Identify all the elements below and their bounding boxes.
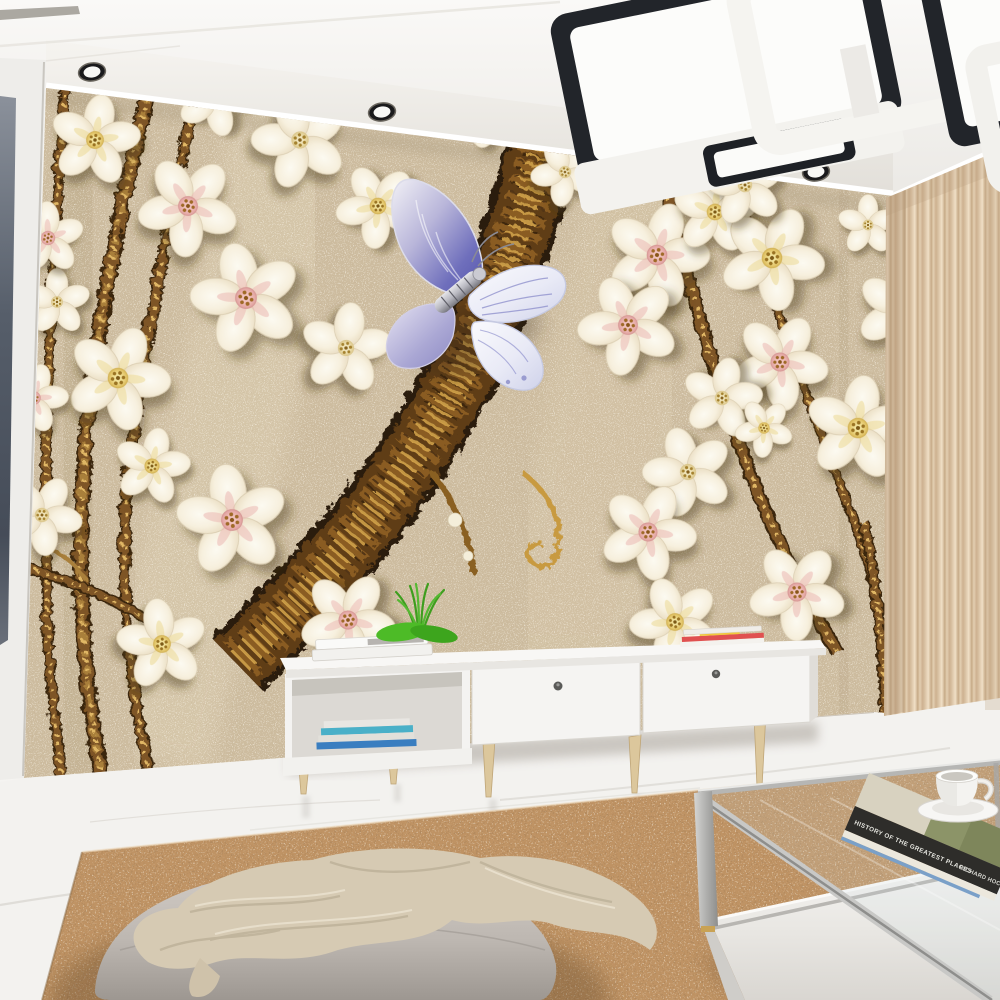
living-room-scene: HISTORY OF THE GREATEST PLACES RICHARD H… (0, 0, 1000, 1000)
knob-highlight (715, 671, 718, 674)
butterfly-wing-dot (521, 375, 526, 380)
tv-stand-right-side (810, 647, 818, 722)
curtain (884, 150, 1000, 716)
flower-bud (448, 513, 462, 527)
flower-bud (463, 551, 473, 561)
table-foot (701, 926, 715, 932)
curtain-right-shade (985, 150, 1000, 710)
butterfly-wing-dot (506, 380, 510, 384)
magazines-in-shelf (316, 718, 417, 749)
knob-highlight (556, 683, 559, 686)
cup-interior (941, 772, 973, 781)
curtain-left-shade (884, 190, 906, 716)
scene-svg: HISTORY OF THE GREATEST PLACES RICHARD H… (0, 0, 1000, 1000)
